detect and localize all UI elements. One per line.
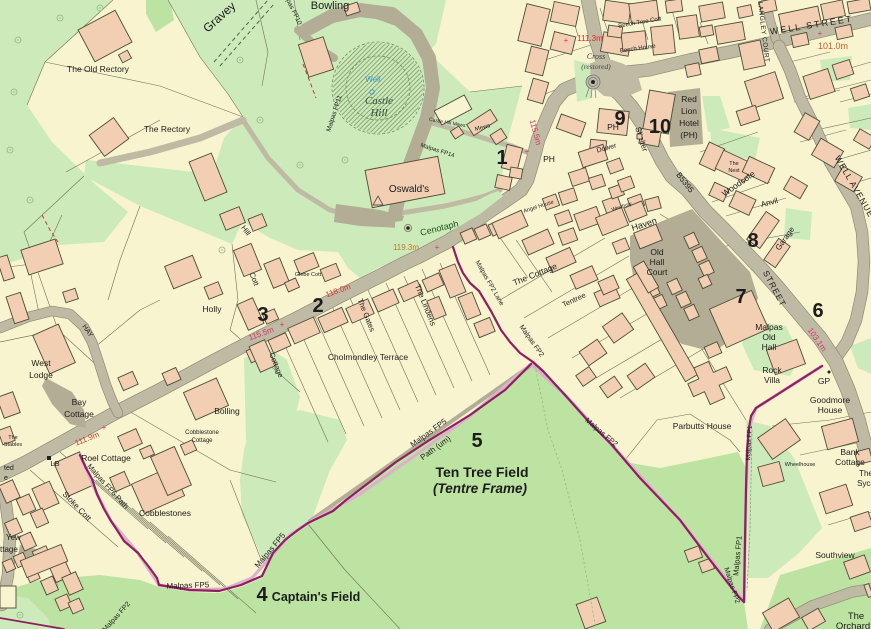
svg-text:101.0m: 101.0m bbox=[818, 41, 848, 51]
svg-text:Lion: Lion bbox=[681, 106, 697, 116]
svg-text:ttage: ttage bbox=[0, 545, 18, 554]
svg-text:(restored): (restored) bbox=[581, 62, 611, 71]
svg-text:9: 9 bbox=[614, 108, 625, 130]
svg-text:Cholmondley Terrace: Cholmondley Terrace bbox=[328, 352, 408, 362]
svg-text:3: 3 bbox=[257, 304, 268, 326]
svg-text:7: 7 bbox=[735, 286, 746, 308]
svg-text:+: + bbox=[280, 320, 285, 329]
svg-text:10: 10 bbox=[649, 116, 671, 138]
svg-text:Cottage: Cottage bbox=[191, 438, 213, 444]
svg-text:Hall: Hall bbox=[762, 342, 777, 352]
svg-text:Old: Old bbox=[762, 332, 776, 342]
svg-text:+: + bbox=[435, 243, 440, 252]
svg-text:Glebe Cott: Glebe Cott bbox=[295, 272, 322, 278]
svg-text:1: 1 bbox=[496, 147, 507, 169]
svg-text:111.3m: 111.3m bbox=[577, 34, 603, 43]
svg-text:Hill: Hill bbox=[369, 107, 387, 119]
svg-text:Orchard: Orchard bbox=[836, 621, 870, 629]
svg-text:ted: ted bbox=[4, 465, 14, 472]
svg-text:House: House bbox=[818, 405, 843, 415]
svg-text:Nest: Nest bbox=[728, 168, 740, 174]
svg-text:Bowling: Bowling bbox=[311, 0, 350, 12]
svg-text:Hotel: Hotel bbox=[679, 118, 699, 128]
svg-text:Cross: Cross bbox=[587, 52, 605, 61]
svg-text:Yew: Yew bbox=[6, 533, 21, 542]
svg-text:Malpas: Malpas bbox=[755, 322, 782, 332]
svg-text:Hall: Hall bbox=[650, 257, 665, 267]
svg-text:+: + bbox=[102, 423, 107, 432]
svg-text:Roel Cottage: Roel Cottage bbox=[81, 453, 131, 463]
svg-text:Rock: Rock bbox=[762, 365, 782, 375]
svg-text:Cobblestones: Cobblestones bbox=[139, 508, 191, 518]
svg-text:The: The bbox=[859, 469, 871, 478]
svg-text:+: + bbox=[818, 29, 823, 38]
svg-text:+: + bbox=[564, 36, 569, 45]
svg-text:(PH): (PH) bbox=[680, 130, 698, 140]
svg-text:PH: PH bbox=[543, 154, 555, 164]
svg-text:2: 2 bbox=[312, 295, 323, 317]
svg-text:Malpas FP5: Malpas FP5 bbox=[166, 580, 210, 591]
svg-text:Cobblestone: Cobblestone bbox=[185, 430, 219, 436]
svg-text:Captain's Field: Captain's Field bbox=[272, 590, 360, 604]
svg-text:Stables: Stables bbox=[4, 442, 23, 448]
svg-text:Holly: Holly bbox=[203, 304, 223, 314]
svg-text:5: 5 bbox=[471, 430, 482, 452]
svg-text:Lodge: Lodge bbox=[29, 370, 53, 380]
svg-text:(Tentre Frame): (Tentre Frame) bbox=[433, 481, 528, 496]
svg-text:+: + bbox=[525, 147, 530, 156]
svg-text:Red: Red bbox=[681, 94, 697, 104]
svg-text:Castle: Castle bbox=[365, 95, 393, 107]
svg-text:The Old Rectory: The Old Rectory bbox=[67, 64, 130, 74]
svg-text:Bay: Bay bbox=[72, 397, 87, 407]
svg-text:6: 6 bbox=[812, 300, 823, 322]
svg-text:Cottage: Cottage bbox=[64, 409, 94, 419]
svg-text:Cottage: Cottage bbox=[835, 457, 865, 467]
svg-text:Parbutts House: Parbutts House bbox=[673, 421, 732, 431]
svg-text:Bank: Bank bbox=[840, 447, 860, 457]
svg-text:Wheelhouse: Wheelhouse bbox=[785, 462, 816, 468]
svg-text:Court: Court bbox=[647, 267, 668, 277]
svg-text:Ten Tree Field: Ten Tree Field bbox=[435, 464, 528, 480]
svg-text:8: 8 bbox=[747, 230, 758, 252]
svg-text:119.3m: 119.3m bbox=[393, 243, 419, 252]
svg-text:The: The bbox=[8, 435, 17, 441]
svg-text:Goodmore: Goodmore bbox=[810, 395, 850, 405]
svg-text:Southview: Southview bbox=[815, 550, 855, 560]
svg-text:Bolling: Bolling bbox=[214, 406, 240, 416]
svg-text:The: The bbox=[729, 161, 738, 167]
svg-text:e: e bbox=[4, 475, 8, 482]
svg-text:GP: GP bbox=[818, 376, 831, 386]
svg-text:Villa: Villa bbox=[764, 375, 780, 385]
svg-text:Oswald's: Oswald's bbox=[389, 184, 429, 195]
svg-text:West: West bbox=[31, 358, 51, 368]
svg-text:Syca: Syca bbox=[857, 479, 871, 488]
svg-text:The Rectory: The Rectory bbox=[144, 124, 191, 134]
svg-text:LB: LB bbox=[50, 459, 59, 468]
svg-text:Old: Old bbox=[650, 247, 664, 257]
svg-text:4: 4 bbox=[256, 584, 268, 606]
svg-text:Well: Well bbox=[365, 75, 381, 84]
